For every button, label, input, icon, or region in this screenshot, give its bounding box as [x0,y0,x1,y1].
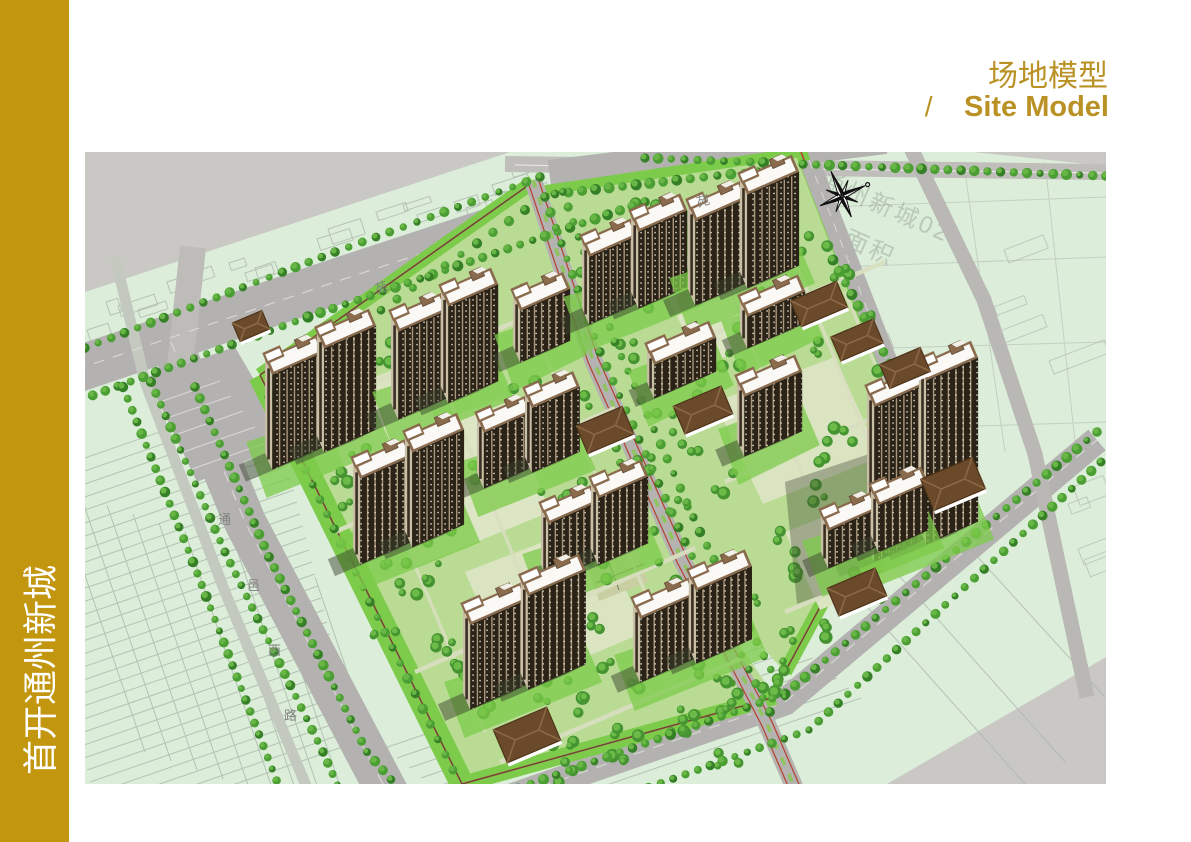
svg-text:路: 路 [284,708,297,723]
svg-text:邑: 邑 [247,578,260,593]
svg-text:通: 通 [218,512,231,527]
svg-text:西: 西 [268,643,281,658]
